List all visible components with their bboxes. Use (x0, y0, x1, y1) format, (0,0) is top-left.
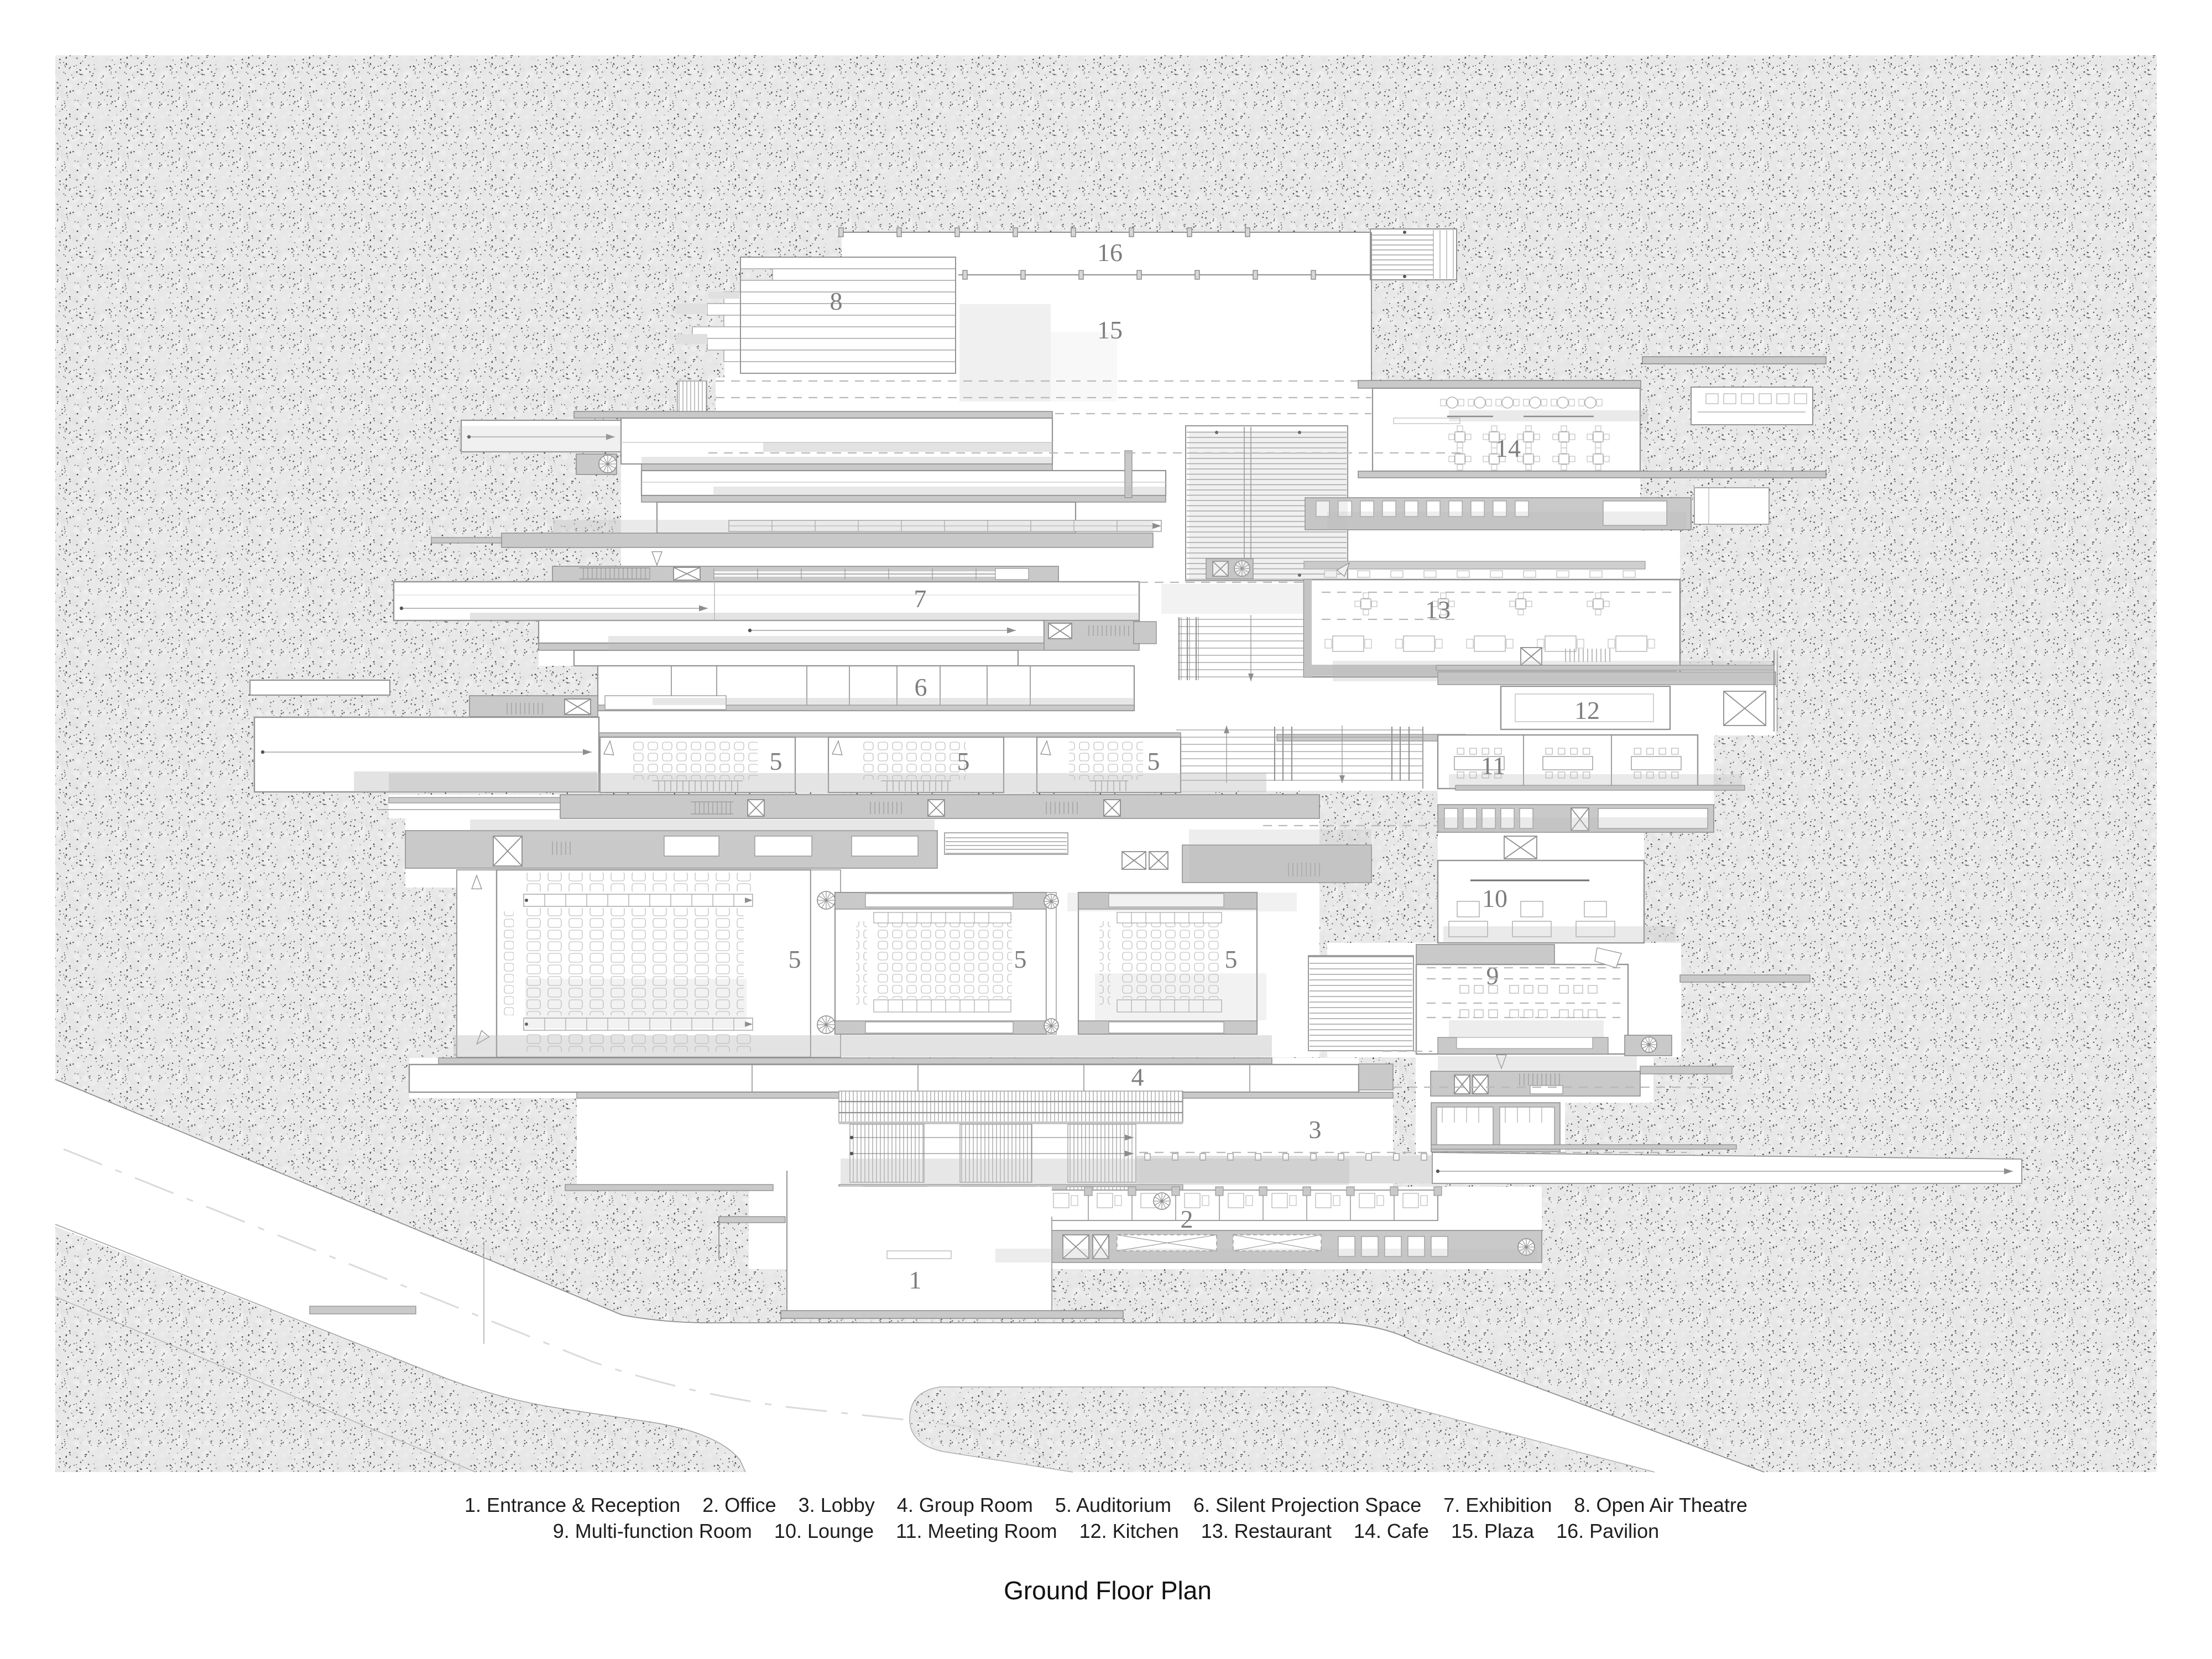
svg-text:5: 5 (770, 747, 782, 775)
svg-text:5: 5 (789, 945, 801, 973)
svg-text:2: 2 (1181, 1205, 1193, 1233)
svg-text:13: 13 (1425, 596, 1451, 624)
svg-text:5: 5 (957, 747, 970, 775)
svg-text:9. Multi-function Room 10.: 9. Multi-function Room 10. Lounge 11. Me… (553, 1520, 1659, 1542)
svg-text:14: 14 (1495, 434, 1521, 462)
svg-text:1: 1 (909, 1266, 922, 1294)
svg-text:8: 8 (830, 287, 843, 315)
svg-text:5: 5 (1014, 945, 1027, 973)
svg-text:10: 10 (1482, 884, 1507, 912)
svg-text:4: 4 (1131, 1063, 1144, 1091)
svg-text:Ground Floor Plan: Ground Floor Plan (1004, 1576, 1212, 1605)
svg-text:7: 7 (914, 585, 927, 613)
svg-text:16: 16 (1097, 238, 1123, 267)
svg-text:5: 5 (1225, 945, 1238, 973)
svg-text:6: 6 (915, 673, 927, 701)
svg-text:1. Entrance & Reception 2.: 1. Entrance & Reception 2. Office 3. Lob… (465, 1494, 1747, 1516)
svg-text:5: 5 (1147, 747, 1160, 775)
svg-text:12: 12 (1574, 696, 1600, 724)
svg-text:3: 3 (1309, 1115, 1322, 1144)
